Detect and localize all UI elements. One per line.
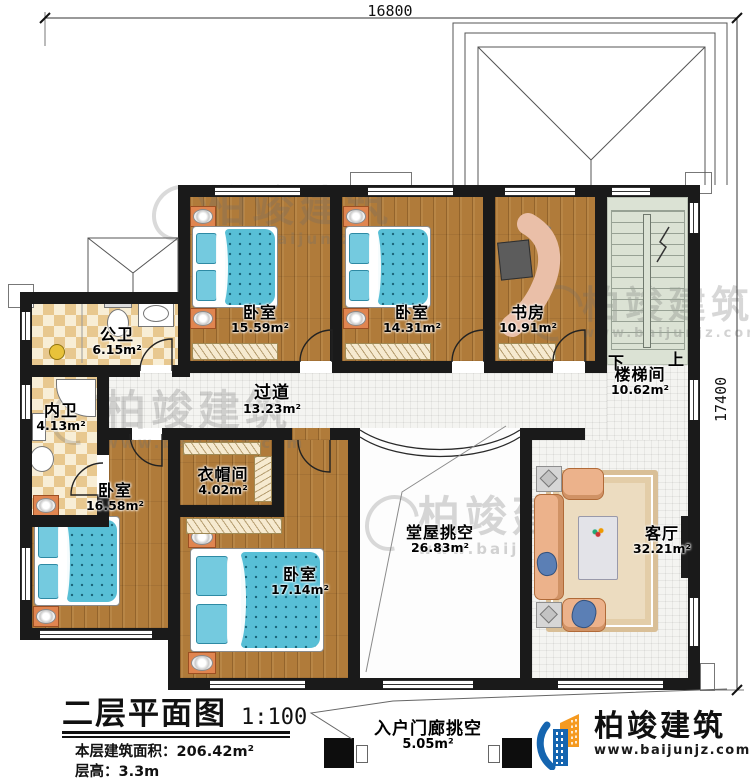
bedroom4-floor xyxy=(284,440,348,517)
window-sill xyxy=(350,172,412,186)
wall xyxy=(483,197,495,361)
bed-icon xyxy=(34,516,120,606)
room-label-entry-porch-void: 入户门廊挑空5.05m² xyxy=(358,720,498,753)
room-label-bedroom1: 卧室15.59m² xyxy=(210,304,310,336)
nightstand-icon xyxy=(188,652,216,674)
window xyxy=(689,380,699,420)
wall xyxy=(330,197,342,361)
room-label-private-bath: 内卫4.13m² xyxy=(11,402,111,434)
pillows-icon xyxy=(196,556,228,644)
company-name: 柏竣建筑 xyxy=(594,710,750,743)
quilt-icon xyxy=(225,229,275,304)
bedroom4-doorway-floor xyxy=(292,428,330,440)
wall xyxy=(109,428,132,440)
bed-icon xyxy=(345,226,431,308)
wall xyxy=(484,361,553,373)
pillows-icon xyxy=(196,233,216,302)
nightstand-icon xyxy=(190,206,216,227)
room-label-public-bath: 公卫6.15m² xyxy=(67,326,167,358)
sink-icon xyxy=(143,305,169,322)
dimension-top-label: 16800 xyxy=(352,2,428,20)
wall xyxy=(332,361,452,373)
title-block: 二层平面图 1:100 xyxy=(62,688,307,733)
wall xyxy=(180,505,284,517)
floor-drain-icon xyxy=(49,344,65,360)
bed-icon xyxy=(192,226,278,308)
room-label-bedroom4: 卧室17.14m² xyxy=(250,566,350,598)
room-label-bedroom3: 卧室16.58m² xyxy=(65,482,165,514)
quilt-icon xyxy=(378,229,428,304)
company-website: www.baijunjz.com xyxy=(594,743,750,758)
window xyxy=(215,187,300,196)
porch-pillar xyxy=(502,738,532,768)
wall xyxy=(330,428,360,440)
wall xyxy=(20,365,140,377)
room-label-study: 书房10.91m² xyxy=(478,304,578,336)
pillows-icon xyxy=(38,523,58,599)
window xyxy=(40,630,152,639)
company-logo: 柏竣建筑 www.baijunjz.com xyxy=(536,710,750,770)
room-label-stairwell: 楼梯间10.62m² xyxy=(590,366,690,398)
pillows-icon xyxy=(349,233,369,302)
corridor-floor xyxy=(109,373,607,428)
wall xyxy=(178,185,190,373)
window xyxy=(505,187,575,196)
window xyxy=(689,203,699,233)
closet-icon xyxy=(345,343,431,360)
window xyxy=(383,680,473,689)
closet-icon xyxy=(192,343,278,360)
window xyxy=(21,548,31,600)
wall xyxy=(20,515,109,527)
room-label-corridor: 过道13.23m² xyxy=(222,384,322,417)
side-table-icon xyxy=(536,602,562,628)
room-label-cloakroom: 衣帽间4.02m² xyxy=(173,466,273,498)
plan-scale: 1:100 xyxy=(241,705,307,730)
window xyxy=(612,187,650,196)
living-opening-floor xyxy=(585,428,607,440)
room-label-bedroom2: 卧室14.31m² xyxy=(362,304,462,336)
nightstand-icon xyxy=(33,606,59,627)
company-logo-icon xyxy=(536,710,588,770)
porch-pillar xyxy=(324,738,354,768)
floor-area-line: 本层建筑面积：206.42m² xyxy=(75,740,254,761)
stair-up-label: 上 xyxy=(668,346,684,370)
window xyxy=(21,312,31,340)
wall xyxy=(20,292,190,304)
wall xyxy=(190,361,300,373)
window-sill xyxy=(700,663,715,691)
window xyxy=(689,598,699,646)
wardrobe-rack-icon xyxy=(183,442,261,455)
side-table-icon xyxy=(536,466,562,492)
nightstand-icon xyxy=(343,206,369,227)
closet-icon xyxy=(498,343,556,360)
title-underline xyxy=(62,731,290,738)
window xyxy=(368,187,453,196)
wall xyxy=(520,428,532,678)
bed-icon xyxy=(190,548,324,652)
armchair-icon xyxy=(562,468,604,500)
room-label-living-room: 客厅32.21m² xyxy=(612,525,712,557)
quilt-icon xyxy=(67,520,117,603)
floor-height-line: 层高：3.3m xyxy=(75,760,159,781)
sink-icon xyxy=(30,446,54,472)
wall xyxy=(348,440,360,678)
window xyxy=(558,680,663,689)
stair-rail-icon xyxy=(643,214,651,348)
floor-plan-canvas: 柏竣建筑 www.baijunjz.com 柏竣建筑 www.baijunjz.… xyxy=(0,0,750,781)
page-title: 二层平面图 xyxy=(62,688,227,733)
room-label-hall-void: 堂屋挑空26.83m² xyxy=(390,524,490,556)
computer-monitor-icon xyxy=(497,239,533,280)
dimension-right-label: 17400 xyxy=(712,360,730,438)
wall xyxy=(595,197,607,361)
nightstand-icon xyxy=(33,495,59,516)
wall xyxy=(172,365,190,377)
closet-icon xyxy=(186,518,282,534)
wall xyxy=(180,428,292,440)
stair-down-label: 下 xyxy=(608,349,624,373)
sofa-icon xyxy=(534,494,564,600)
wall xyxy=(532,428,585,440)
